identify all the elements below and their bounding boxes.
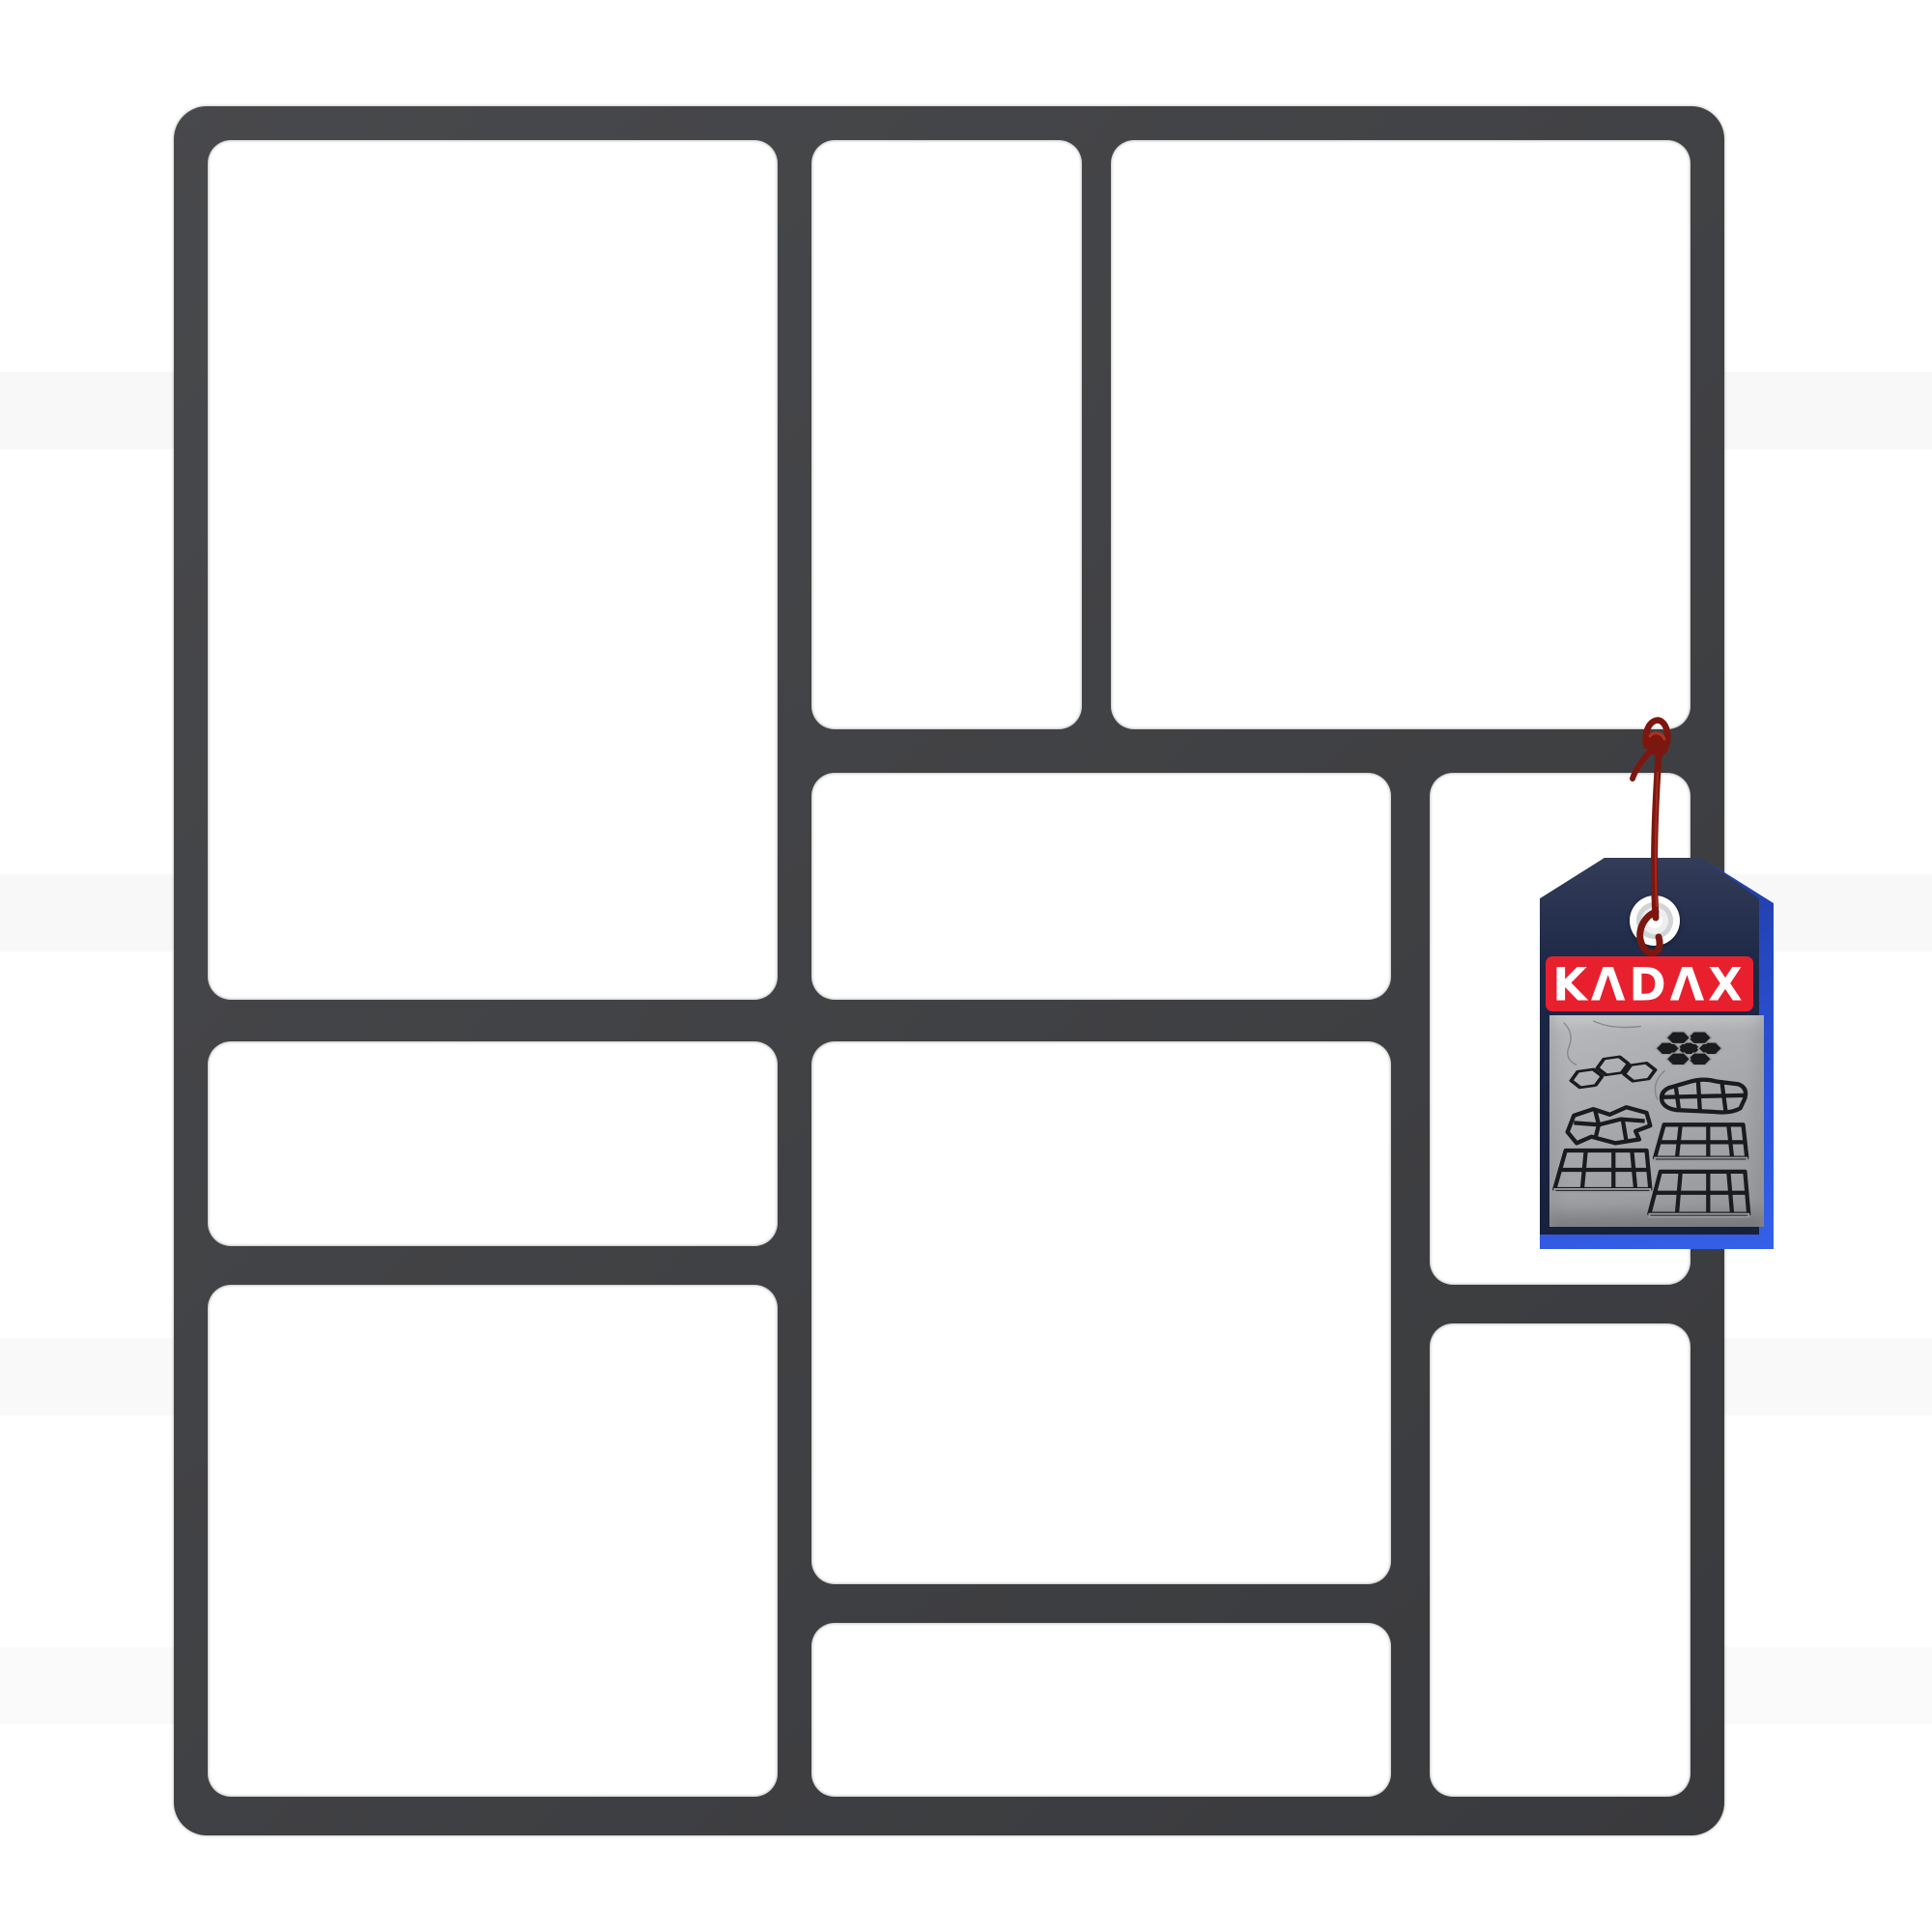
mold-cavity-top-middle (811, 140, 1082, 729)
mold-cavity-top-left (208, 140, 778, 1000)
tag-photo (1549, 1015, 1764, 1227)
triple-hexagon-mold-icon (1569, 1052, 1657, 1090)
mold-cavity-middle-center (811, 1041, 1391, 1584)
mold-thumbnails-illustration (1549, 1015, 1764, 1227)
mold-cavity-middle-upper (811, 773, 1391, 1000)
mold-cavity-left-middle (208, 1041, 778, 1246)
mold-cavity-bottom-middle (811, 1623, 1391, 1797)
mold-cavity-top-right (1111, 140, 1690, 729)
concrete-crack-icon (1593, 1021, 1641, 1028)
mold-cavity-bottom-right (1430, 1323, 1690, 1797)
crazy-paving-mold-icon (1568, 1107, 1651, 1143)
grid-mold-left-icon (1554, 1151, 1650, 1192)
grid-mold-large-icon (1649, 1172, 1748, 1217)
cobblestone-mold-icon (1662, 1080, 1746, 1113)
hexagon-cluster-mold-icon (1656, 1032, 1722, 1065)
mold-cavity-bottom-left (208, 1285, 778, 1797)
hanging-wire (1594, 676, 1729, 976)
concrete-crack-icon (1564, 1023, 1577, 1065)
paver-mold-frame (174, 106, 1724, 1835)
product-photo: KΛDΛX (0, 0, 1932, 1932)
grid-mold-small-icon (1655, 1124, 1747, 1160)
